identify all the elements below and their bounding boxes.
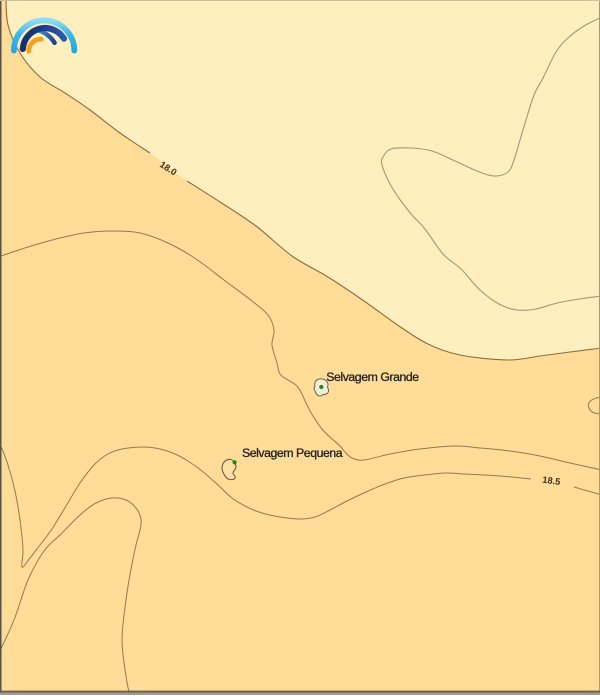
svg-text:Selvagem Grande: Selvagem Grande [326,370,419,384]
svg-text:Selvagem Pequena: Selvagem Pequena [242,446,343,460]
